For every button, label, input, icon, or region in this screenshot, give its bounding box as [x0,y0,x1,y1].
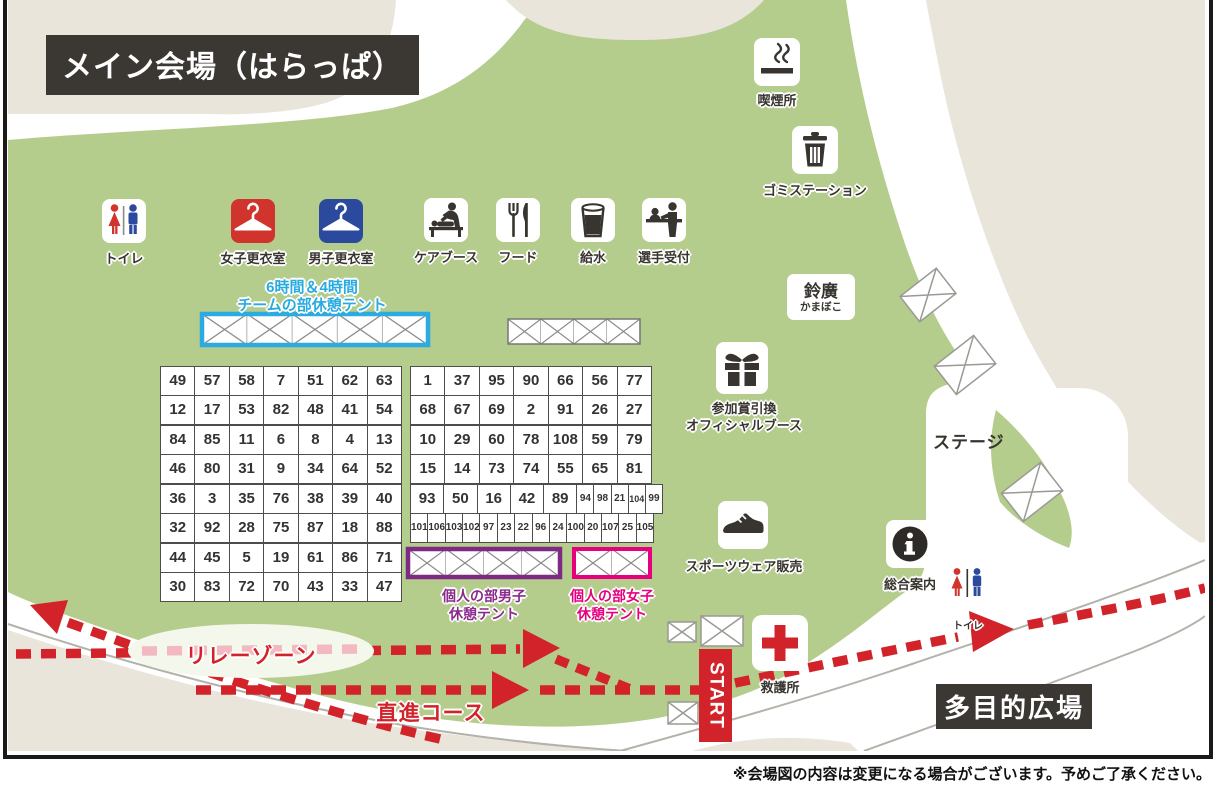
sportswear-icon [718,501,768,549]
disclaimer-note: ※会場図の内容は変更になる場合がございます。予めご了承ください。 [733,763,1211,784]
tent-number-cell: 33 [332,573,366,601]
tent-number-cell: 27 [617,396,651,424]
care-booth-icon [424,198,468,242]
tent-number-cell: 91 [548,396,582,424]
tent-number-cell: 79 [617,426,651,454]
tent-number-cell: 76 [263,485,297,513]
tent-number-cell: 35 [229,485,263,513]
tent-number-cell: 25 [618,514,635,542]
athlete-reception-label: 選手受付 [638,247,690,266]
tent-number-cell: 105 [636,514,653,542]
information-icon [886,520,934,568]
men-tent-row [408,549,560,577]
tent-number-cell: 9 [263,455,297,483]
suzuhiro-booth: 鈴廣 かまぼこ [787,274,855,320]
tent-number-cell: 56 [582,367,616,395]
toilet-small-label: トイレ [953,617,983,632]
tent-number-row: 3633576383940 [160,484,402,514]
tent-number-cell: 31 [229,455,263,483]
tent-number-cell: 50 [443,485,476,513]
tent-number-cell: 24 [549,514,566,542]
tent-number-cell: 2 [513,396,547,424]
tent-number-cell: 52 [367,455,401,483]
tent-number-row: 84851168413 [160,425,402,455]
tent-number-grid-left-1: 495758751626312175382484154 [160,366,402,425]
team-tent-row [202,314,428,345]
men-changing-label: 男子更衣室 [308,248,373,267]
tent-number-cell: 92 [194,514,228,542]
tent-number-cell: 47 [367,573,401,601]
women-changing-label: 女子更衣室 [220,248,285,267]
tent-number-row: 32922875871888 [160,513,402,543]
tent-icon [668,702,698,724]
tent-number-cell: 71 [367,544,401,572]
tent-number-cell: 54 [367,396,401,424]
tent-number-cell: 66 [548,367,582,395]
tent-number-cell: 49 [161,367,194,395]
tent-number-cell: 84 [161,426,194,454]
men-tent-label-line1: 個人の部男子 [442,586,526,606]
tent-number-cell: 29 [444,426,478,454]
tent-number-cell: 17 [194,396,228,424]
start-banner: START [699,649,732,742]
team-tent-label-line2: チームの部休憩テント [237,294,387,315]
food-icon [496,198,540,242]
straight-course-label: 直進コース [377,697,486,727]
tent-number-row: 1379590665677 [410,366,652,396]
tent-number-cell: 67 [444,396,478,424]
tent-number-cell: 51 [298,367,332,395]
tent-number-cell: 42 [510,485,543,513]
water-label: 給水 [580,247,606,266]
prize-exchange-label-line2: オフィシャルブース [686,415,802,434]
first-aid-icon [752,615,808,671]
tent-number-cell: 104 [628,485,645,513]
tent-number-cell: 88 [367,514,401,542]
tent-number-cell: 32 [161,514,194,542]
men-tent-label-line2: 休憩テント [449,604,519,624]
women-tent-row [574,549,650,577]
tent-number-cell: 40 [367,485,401,513]
tent-number-row: 935016428994982110499 [410,484,663,514]
tent-number-cell: 48 [298,396,332,424]
suzuhiro-name: 鈴廣 [804,282,838,301]
garbage-station-label: ゴミステーション [763,180,867,199]
tent-number-cell: 3 [194,485,228,513]
tent-number-cell: 26 [582,396,616,424]
stage-label: ステージ [933,428,1005,453]
smoking-area-icon [754,38,800,86]
tent-number-cell: 13 [367,426,401,454]
tent-number-row: 10110610310297232296241002010725105 [410,513,654,543]
tent-number-cell: 83 [194,573,228,601]
garbage-station-icon [792,126,838,174]
women-tent-label-line1: 個人の部女子 [570,586,654,606]
tent-number-cell: 68 [411,396,444,424]
tent-number-cell: 60 [479,426,513,454]
tent-number-cell: 72 [229,573,263,601]
start-label: START [705,662,727,729]
information-label: 総合案内 [884,574,936,593]
athlete-reception-icon [642,198,686,242]
tent-number-cell: 62 [332,367,366,395]
tent-number-cell: 61 [298,544,332,572]
care-booth-label: ケアブース [414,247,478,266]
tent-number-cell: 7 [263,367,297,395]
tent-number-cell: 59 [582,426,616,454]
tent-number-cell: 11 [229,426,263,454]
tent-number-cell: 30 [161,573,194,601]
sportswear-label: スポーツウェア販売 [686,556,803,575]
tent-number-grid-right-1: 13795906656776867692912627 [410,366,652,425]
tent-number-row: 4445519618671 [160,543,402,573]
tent-number-cell: 18 [332,514,366,542]
tent-number-row: 6867692912627 [410,395,652,425]
multipurpose-plaza-label: 多目的広場 [936,684,1092,729]
relay-zone-label: リレーゾーン [186,640,317,670]
venue-map: メイン会場（はらっぱ） ※会場図の内容は変更になる場合がございます。予めご了承く… [0,0,1217,791]
tent-number-cell: 12 [161,396,194,424]
tent-number-grid-right-3: 9350164289949821104991011061031029723229… [410,484,663,543]
tent-number-cell: 22 [514,514,531,542]
toilet-label: トイレ [104,248,143,267]
prize-exchange-icon [716,342,768,394]
tent-number-cell: 107 [601,514,618,542]
suzuhiro-subname: かまぼこ [800,301,842,313]
tent-number-cell: 16 [477,485,510,513]
tent-number-cell: 96 [532,514,549,542]
tent-icon [668,622,696,642]
tent-number-cell: 53 [229,396,263,424]
tent-number-cell: 82 [263,396,297,424]
tent-number-cell: 55 [548,455,582,483]
tent-number-cell: 38 [298,485,332,513]
women-changing-icon [231,199,275,243]
tent-number-cell: 87 [298,514,332,542]
water-icon [571,198,615,242]
tent-number-cell: 57 [194,367,228,395]
tent-number-cell: 69 [479,396,513,424]
tent-number-cell: 23 [497,514,514,542]
tent-number-cell: 74 [513,455,547,483]
tent-number-cell: 1 [411,367,444,395]
tent-number-cell: 90 [513,367,547,395]
tent-number-cell: 97 [479,514,496,542]
tent-number-grid-left-2: 848511684134680319346452 [160,425,402,484]
tent-number-cell: 46 [161,455,194,483]
tent-number-grid-left-4: 444551961867130837270433347 [160,543,402,602]
tent-icon [701,616,743,646]
toilet-small-icon [945,564,991,619]
toilet-icon [102,199,146,243]
tent-number-cell: 86 [332,544,366,572]
tent-number-cell: 77 [617,367,651,395]
tent-number-cell: 15 [411,455,444,483]
tent-number-cell: 99 [645,485,662,513]
men-changing-icon [319,199,363,243]
tent-number-cell: 93 [411,485,443,513]
tent-number-cell: 81 [617,455,651,483]
tent-number-cell: 4 [332,426,366,454]
tent-number-cell: 100 [566,514,583,542]
plain-tent-row [508,319,640,344]
tent-number-cell: 45 [194,544,228,572]
tent-number-cell: 80 [194,455,228,483]
tent-number-cell: 78 [513,426,547,454]
tent-number-row: 4957587516263 [160,366,402,396]
tent-number-cell: 14 [444,455,478,483]
tent-number-cell: 19 [263,544,297,572]
tent-number-cell: 64 [332,455,366,483]
first-aid-label: 救護所 [760,677,799,696]
tent-number-cell: 41 [332,396,366,424]
tent-number-cell: 98 [593,485,610,513]
tent-number-cell: 102 [462,514,479,542]
tent-number-cell: 5 [229,544,263,572]
tent-number-cell: 6 [263,426,297,454]
tent-number-cell: 101 [411,514,427,542]
tent-number-cell: 43 [298,573,332,601]
tent-number-cell: 21 [611,485,628,513]
tent-number-cell: 39 [332,485,366,513]
tent-number-cell: 70 [263,573,297,601]
smoking-area-label: 喫煙所 [757,90,796,109]
tent-number-cell: 63 [367,367,401,395]
tent-number-row: 12175382484154 [160,395,402,425]
tent-number-cell: 73 [479,455,513,483]
tent-number-cell: 36 [161,485,194,513]
tent-number-row: 30837270433347 [160,572,402,602]
tent-number-cell: 44 [161,544,194,572]
tent-number-cell: 20 [584,514,601,542]
tent-number-cell: 28 [229,514,263,542]
tent-number-cell: 95 [479,367,513,395]
tent-number-row: 15147374556581 [410,454,652,484]
tent-number-cell: 34 [298,455,332,483]
tent-number-grid-right-2: 10296078108597915147374556581 [410,425,652,484]
tent-number-grid-left-3: 363357638394032922875871888 [160,484,402,543]
women-tent-label-line2: 休憩テント [577,604,647,624]
tent-number-cell: 37 [444,367,478,395]
tent-number-cell: 75 [263,514,297,542]
tent-number-cell: 106 [427,514,444,542]
map-title: メイン会場（はらっぱ） [46,35,419,95]
tent-number-cell: 85 [194,426,228,454]
tent-number-cell: 89 [543,485,576,513]
tent-number-cell: 65 [582,455,616,483]
tent-number-cell: 108 [548,426,582,454]
food-label: フード [498,247,537,266]
tent-number-row: 102960781085979 [410,425,652,455]
tent-number-cell: 103 [445,514,462,542]
tent-number-cell: 8 [298,426,332,454]
tent-number-cell: 94 [576,485,593,513]
tent-number-cell: 10 [411,426,444,454]
tent-number-cell: 58 [229,367,263,395]
tent-number-row: 4680319346452 [160,454,402,484]
